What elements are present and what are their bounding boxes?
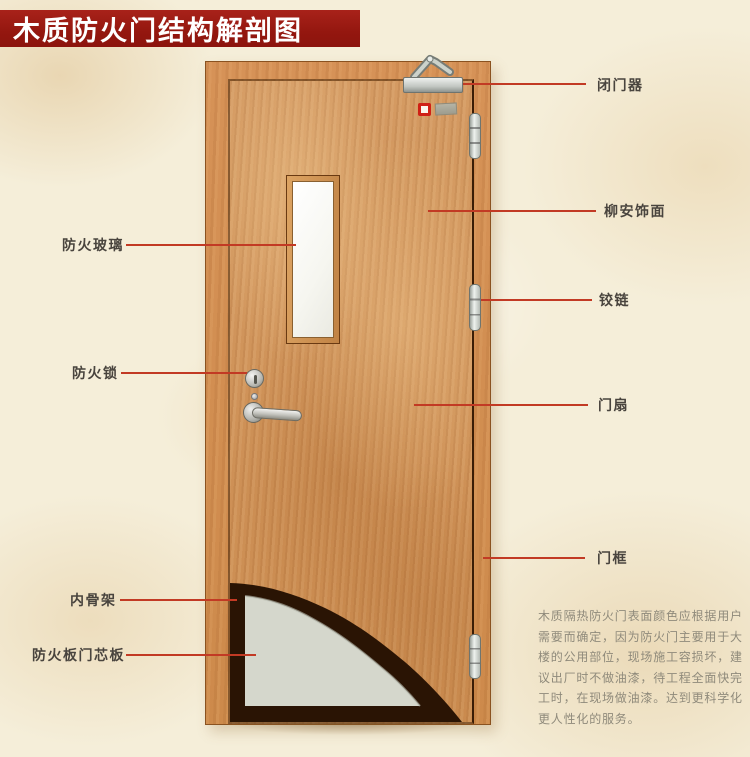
door-shadow bbox=[198, 723, 502, 739]
callout-line-door-frame bbox=[483, 557, 585, 559]
glass-pane bbox=[292, 181, 334, 338]
page-title: 木质防火门结构解剖图 bbox=[0, 9, 303, 48]
callout-label-hinge: 铰链 bbox=[599, 291, 630, 309]
callout-line-fire-board-core bbox=[126, 654, 256, 656]
description-line: 需要而确定，因为防火门主要用于大 bbox=[538, 627, 744, 648]
description-line: 木质隔热防火门表面颜色应根据用户 bbox=[538, 606, 744, 627]
callout-label-fire-board-core: 防火板门芯板 bbox=[32, 646, 125, 664]
callout-line-fire-lock bbox=[121, 372, 247, 374]
lock-screw bbox=[251, 393, 258, 400]
door-leaf bbox=[228, 79, 474, 724]
cutaway-section bbox=[230, 577, 464, 722]
callout-line-lauan-veneer bbox=[428, 210, 596, 212]
door-frame bbox=[205, 61, 491, 725]
callout-line-fire-glass bbox=[126, 244, 296, 246]
callout-label-door-frame: 门框 bbox=[597, 549, 628, 567]
description-line: 议出厂时不做油漆，待工程全面快完 bbox=[538, 668, 744, 689]
door-closer-body bbox=[403, 77, 463, 93]
callout-label-fire-glass: 防火玻璃 bbox=[62, 236, 124, 254]
callout-line-hinge bbox=[479, 299, 592, 301]
hinge-top-icon bbox=[469, 113, 481, 159]
hinge-middle-icon bbox=[469, 284, 481, 331]
callout-line-inner-skeleton bbox=[120, 599, 237, 601]
fire-glass-window bbox=[286, 175, 340, 344]
callout-line-door-leaf bbox=[414, 404, 588, 406]
callout-label-door-closer: 闭门器 bbox=[597, 76, 644, 94]
callout-label-inner-skeleton: 内骨架 bbox=[70, 591, 117, 609]
lock-cylinder bbox=[245, 369, 264, 388]
title-banner: 木质防火门结构解剖图 bbox=[0, 10, 360, 47]
description-line: 更人性化的服务。 bbox=[538, 709, 744, 730]
door-closer-arm-icon bbox=[406, 53, 458, 79]
hinge-bottom-icon bbox=[469, 634, 481, 679]
description-line: 工时，在现场做油漆。达到更科学化 bbox=[538, 688, 744, 709]
callout-label-fire-lock: 防火锁 bbox=[72, 364, 119, 382]
description-text: 木质隔热防火门表面颜色应根据用户 需要而确定，因为防火门主要用于大 楼的公用部位… bbox=[538, 606, 744, 730]
description-line: 楼的公用部位，现场施工容损坏，建 bbox=[538, 647, 744, 668]
fire-safety-emblem bbox=[418, 103, 431, 116]
closer-label-plate bbox=[435, 102, 458, 115]
page-background: 木质防火门结构解剖图 bbox=[0, 0, 750, 757]
callout-label-lauan-veneer: 柳安饰面 bbox=[604, 202, 666, 220]
callout-label-door-leaf: 门扇 bbox=[598, 396, 629, 414]
